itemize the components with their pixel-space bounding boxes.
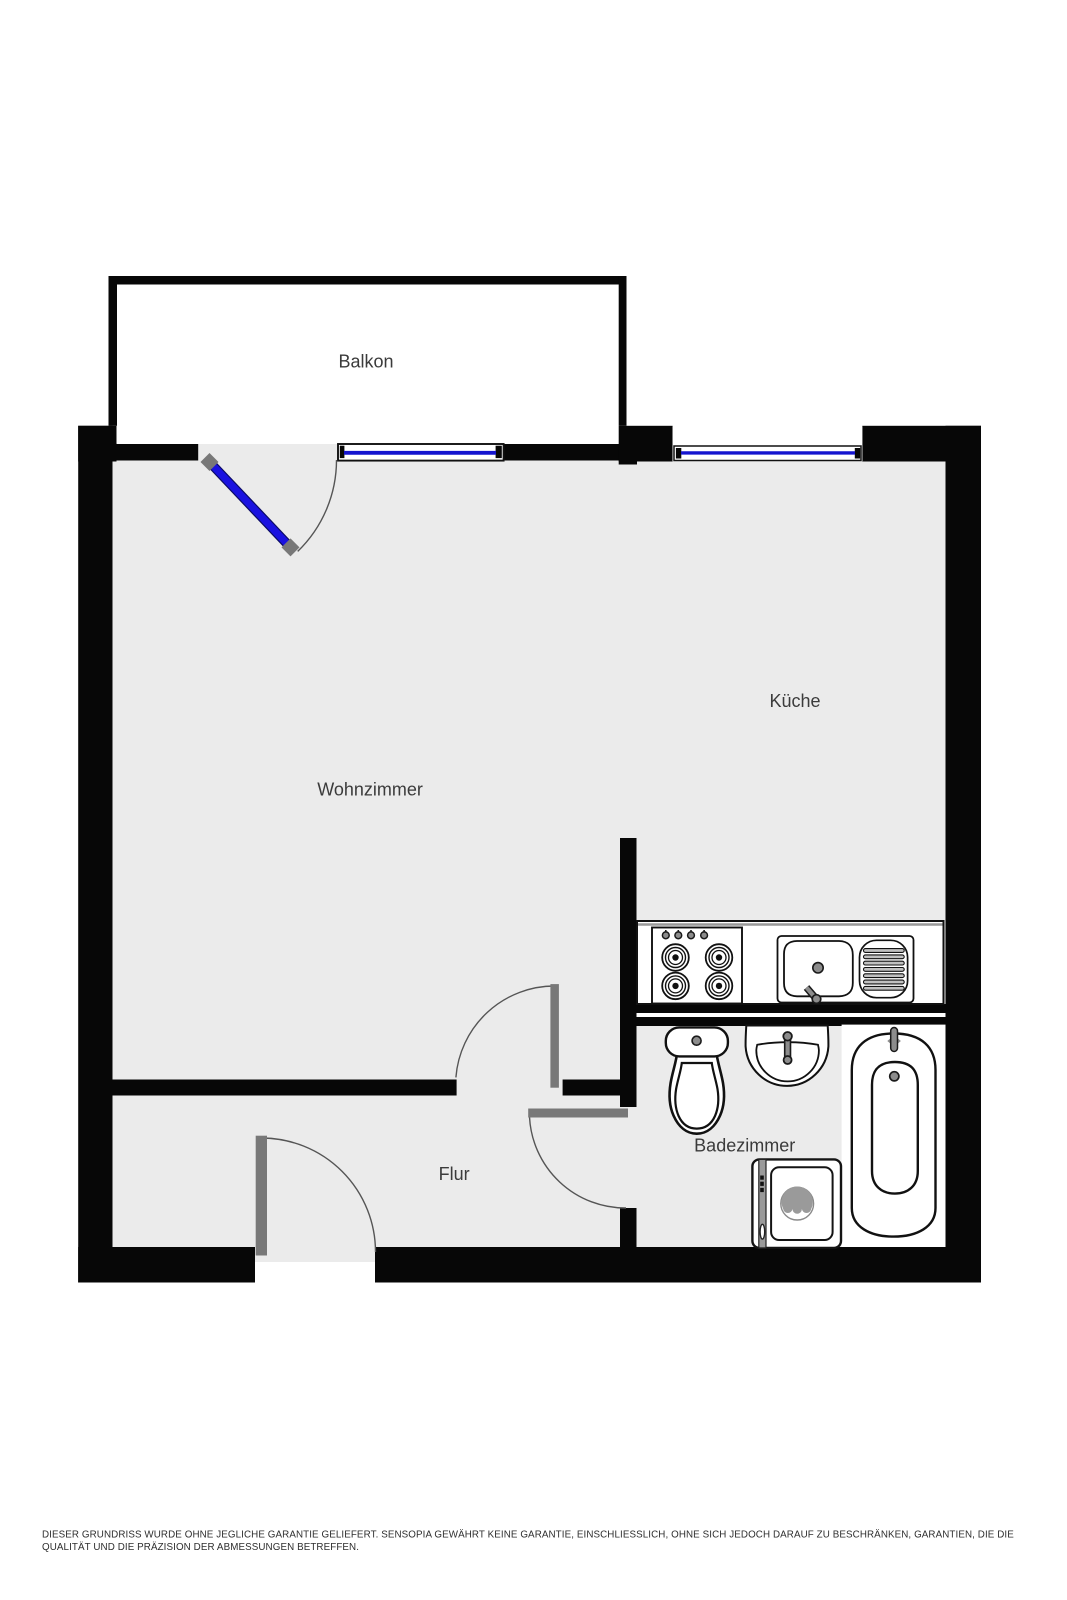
svg-text:Wohnzimmer: Wohnzimmer — [317, 779, 423, 799]
svg-text:Balkon: Balkon — [338, 352, 393, 372]
svg-text:Badezimmer: Badezimmer — [694, 1135, 795, 1155]
svg-text:QUALITÄT UND DIE PRÄZISION DER: QUALITÄT UND DIE PRÄZISION DER ABMESSUNG… — [42, 1542, 359, 1553]
svg-text:DIESER GRUNDRISS WURDE OHNE JE: DIESER GRUNDRISS WURDE OHNE JEGLICHE GAR… — [42, 1530, 1014, 1541]
svg-text:Küche: Küche — [769, 691, 820, 711]
svg-text:Flur: Flur — [439, 1164, 470, 1184]
